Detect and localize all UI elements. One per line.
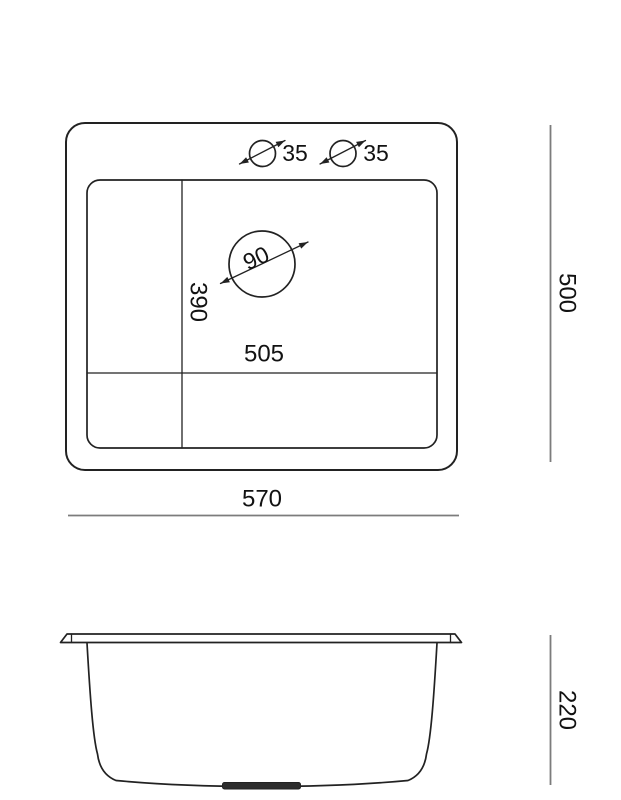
faucet-hole-2-circle	[330, 141, 356, 167]
arrowhead-icon	[221, 277, 230, 284]
faucet-hole-1: 35	[240, 140, 308, 167]
drain-fitting-stub	[223, 783, 301, 790]
drain-diameter-label: 90	[239, 241, 273, 275]
faucet-hole-2-diameter-label: 35	[363, 140, 389, 166]
bowl-depth-label: 390	[185, 282, 212, 322]
drawing-canvas: 35 35 90 390 505 57	[0, 0, 621, 800]
side-view	[61, 634, 462, 789]
dimension-overall-depth: 500	[551, 125, 581, 462]
bowl-inner-edge	[87, 180, 437, 448]
sink-technical-drawing-page: 35 35 90 390 505 57	[0, 0, 621, 800]
overall-height-label: 220	[554, 690, 581, 730]
faucet-hole-1-circle	[250, 141, 276, 167]
overall-width-label: 570	[242, 486, 282, 513]
top-view: 35 35 90 390 505	[66, 123, 457, 470]
overall-depth-label: 500	[554, 273, 581, 313]
arrowhead-icon	[320, 157, 329, 164]
rim-profile	[61, 634, 462, 643]
bowl-width-label: 505	[244, 341, 284, 368]
faucet-hole-1-diameter-label: 35	[282, 140, 308, 166]
drain-hole: 90	[221, 231, 309, 297]
faucet-hole-2: 35	[320, 140, 389, 167]
bowl-profile	[87, 643, 437, 787]
dimension-overall-width: 570	[68, 486, 459, 516]
dimension-overall-height: 220	[551, 635, 581, 785]
arrowhead-icon	[299, 242, 308, 249]
arrowhead-icon	[240, 157, 249, 164]
